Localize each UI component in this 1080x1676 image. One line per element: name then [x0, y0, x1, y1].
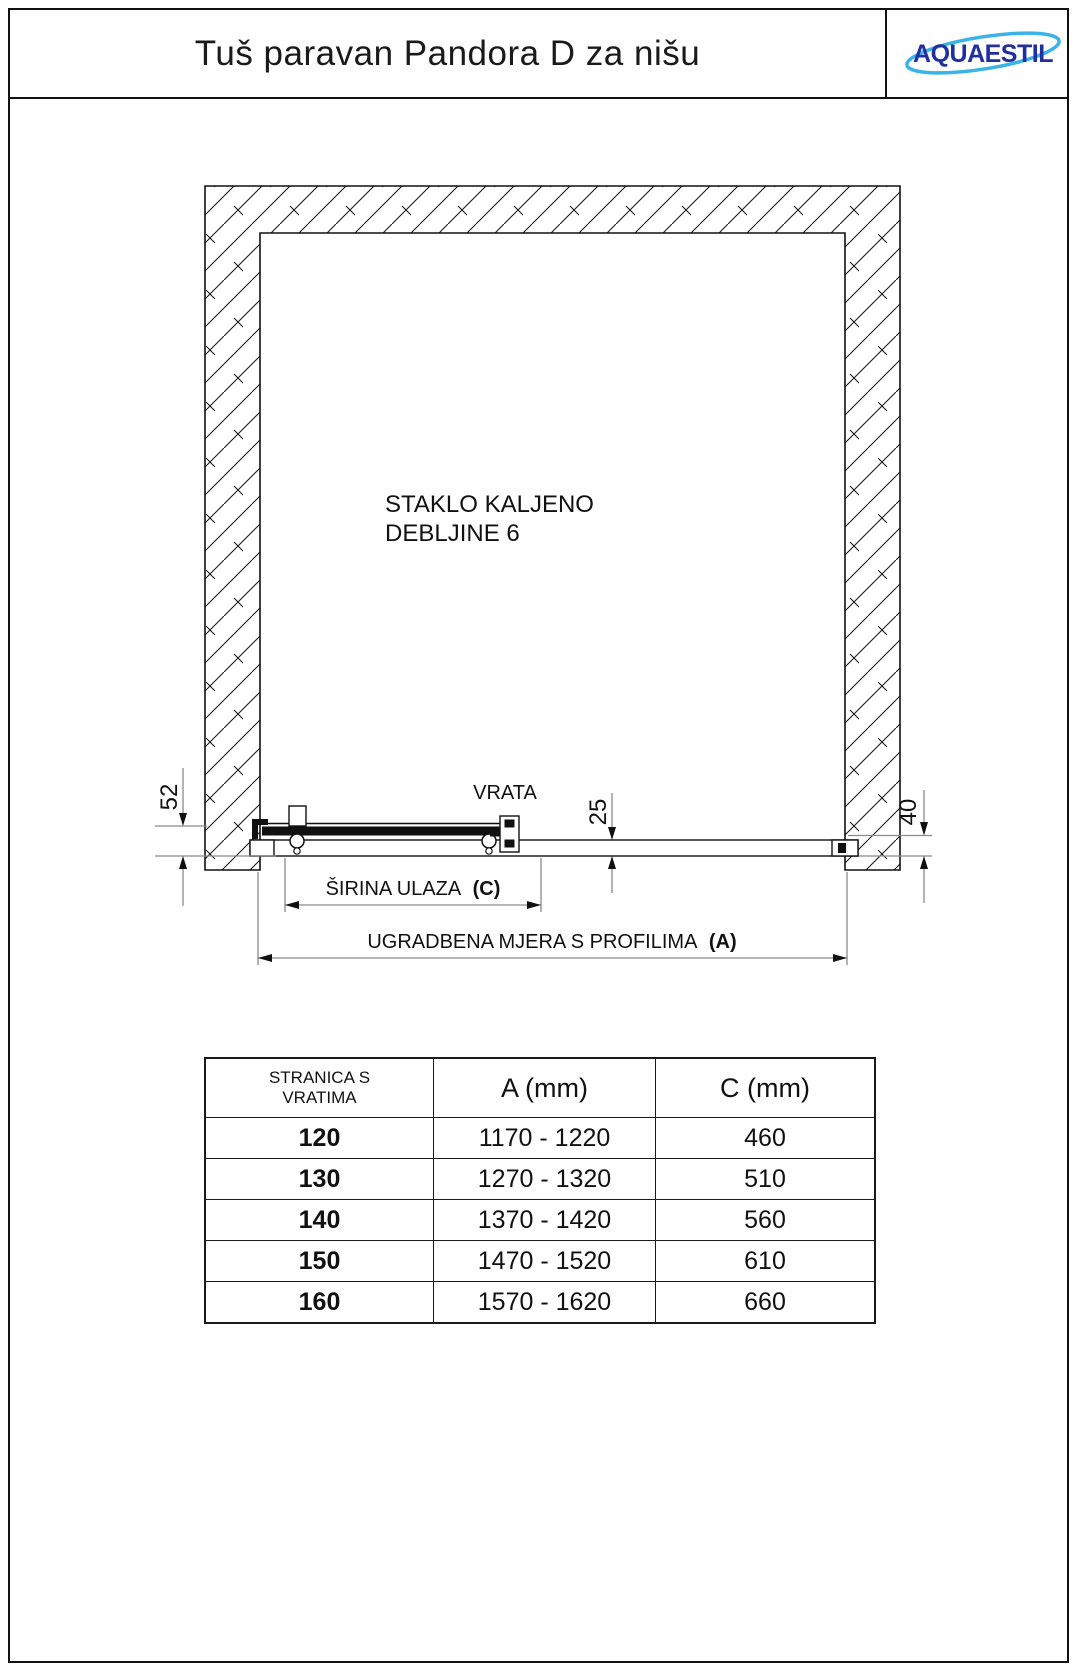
table-cell-size: 140 — [205, 1200, 434, 1241]
dim-c-suffix: (C) — [473, 878, 501, 900]
table-row: 120 1170 - 1220 460 — [205, 1118, 875, 1159]
roller-left — [290, 834, 304, 848]
table-row: 160 1570 - 1620 660 — [205, 1282, 875, 1324]
table-row: 150 1470 - 1520 610 — [205, 1241, 875, 1282]
glass-note-line2: DEBLJINE 6 — [385, 520, 520, 547]
dim-52-label: 52 — [156, 784, 183, 811]
table-cell-size: 130 — [205, 1159, 434, 1200]
door-end-plate-screw-bottom — [505, 840, 515, 848]
roller-right-screw — [486, 848, 492, 854]
dim-40-label: 40 — [895, 799, 922, 826]
table-row: 140 1370 - 1420 560 — [205, 1200, 875, 1241]
dim-c-label: ŠIRINA ULAZA (C) — [326, 877, 501, 900]
table-cell-a-range: 1170 - 1220 — [434, 1118, 656, 1159]
dim-a-suffix: (A) — [709, 931, 737, 953]
table-cell-a-range: 1470 - 1520 — [434, 1241, 656, 1282]
table-header-a: A (mm) — [434, 1058, 656, 1118]
table-cell-a-range: 1270 - 1320 — [434, 1159, 656, 1200]
table-header-c: C (mm) — [656, 1058, 876, 1118]
door-hanger-bracket — [289, 806, 306, 826]
table-cell-c: 660 — [656, 1282, 876, 1324]
size-table: STRANICA S VRATIMA A (mm) C (mm) 120 117… — [204, 1057, 876, 1324]
dim-a-text: UGRADBENA MJERA S PROFILIMA — [367, 931, 698, 953]
table-cell-size: 120 — [205, 1118, 434, 1159]
table-cell-a-range: 1570 - 1620 — [434, 1282, 656, 1324]
technical-drawing: 40 STAKLO KALJENO DEBLJINE 6 — [0, 0, 1080, 1010]
table-cell-c: 510 — [656, 1159, 876, 1200]
table-cell-size: 160 — [205, 1282, 434, 1324]
table-header-size: STRANICA S VRATIMA — [205, 1058, 434, 1118]
glass-note-line1: STAKLO KALJENO — [385, 491, 594, 518]
table-header-size-line1: STRANICA S — [269, 1068, 370, 1087]
table-cell-c: 560 — [656, 1200, 876, 1241]
table-cell-size: 150 — [205, 1241, 434, 1282]
niche-wall — [205, 186, 900, 870]
roller-left-screw — [294, 848, 300, 854]
door-end-plate-screw-top — [505, 820, 515, 828]
table-row: 130 1270 - 1320 510 — [205, 1159, 875, 1200]
table-cell-c: 460 — [656, 1118, 876, 1159]
dim-a-label: UGRADBENA MJERA S PROFILIMA (A) — [367, 931, 736, 953]
dimension-c: ŠIRINA ULAZA (C) — [285, 858, 541, 912]
table-header-row: STRANICA S VRATIMA A (mm) C (mm) — [205, 1058, 875, 1118]
panel-wall-profile-left — [250, 840, 274, 856]
table-cell-a-range: 1370 - 1420 — [434, 1200, 656, 1241]
panel-wall-connector — [838, 843, 846, 853]
dim-c-text: ŠIRINA ULAZA — [326, 877, 462, 900]
table-cell-c: 610 — [656, 1241, 876, 1282]
door-label: VRATA — [473, 782, 537, 804]
fixed-panel — [250, 840, 858, 856]
dim-25-label: 25 — [585, 799, 612, 826]
table-header-size-line2: VRATIMA — [282, 1088, 356, 1107]
document-page: Tuš paravan Pandora D za nišu AQUAESTIL … — [0, 0, 1080, 1676]
